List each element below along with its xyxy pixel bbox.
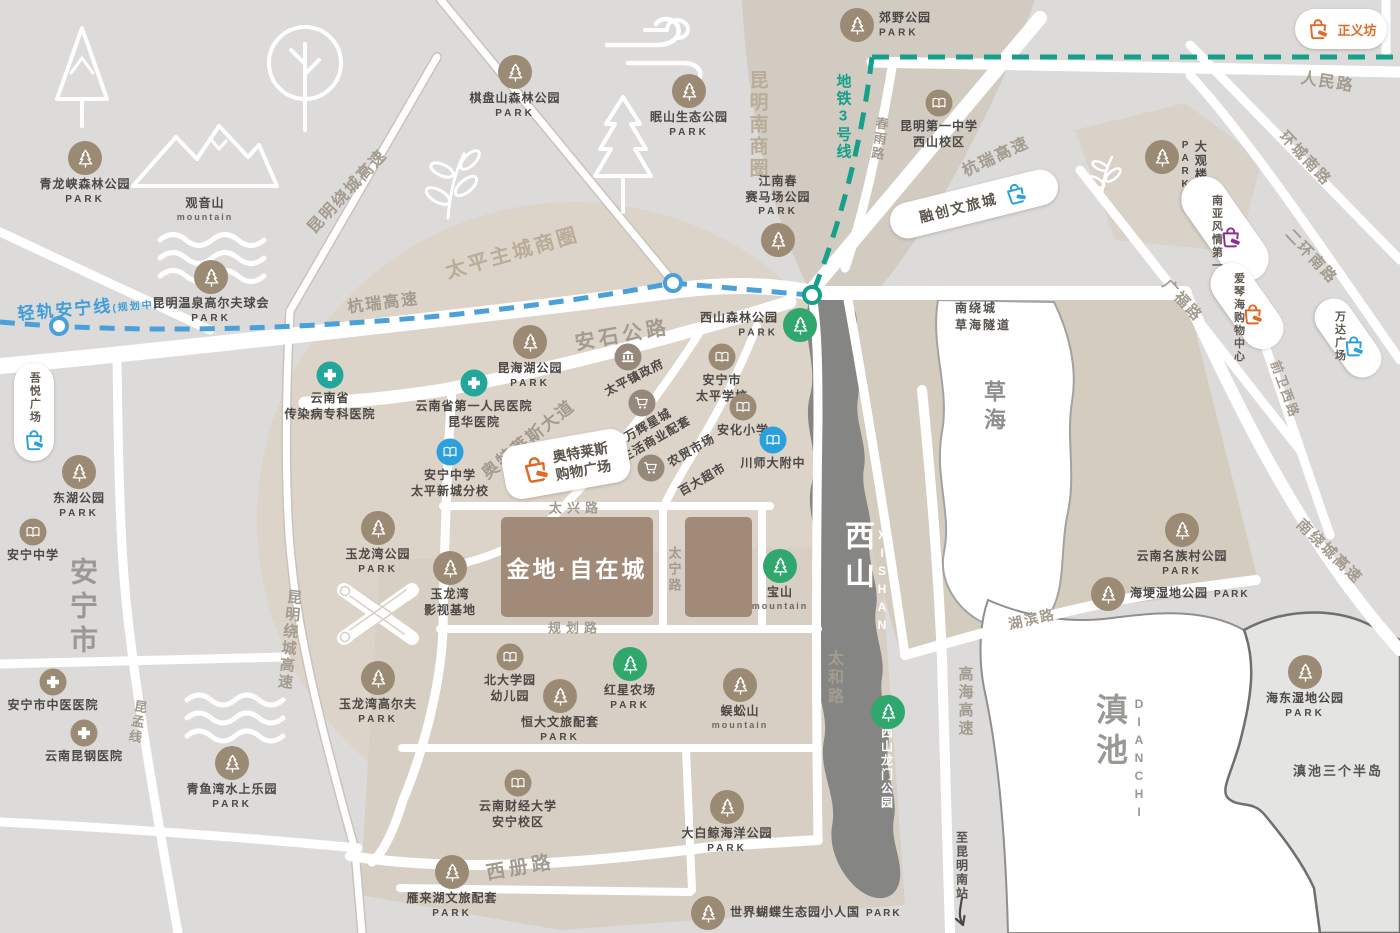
waves-icon-bottom xyxy=(187,695,283,741)
park-tree-icon xyxy=(710,790,744,824)
lrt-station-node xyxy=(665,275,681,291)
road-label-taihe: 太和路 xyxy=(821,650,845,707)
park-tree-icon xyxy=(1145,140,1179,174)
shopping-bag-icon xyxy=(21,427,47,453)
shopping-bag-icon xyxy=(1341,334,1367,360)
hospital-cross-icon xyxy=(71,720,98,747)
shopping-cart-icon xyxy=(629,390,656,417)
park-tree-icon xyxy=(840,8,874,42)
park-tree-icon xyxy=(498,55,532,89)
caohai-label: 草海 xyxy=(977,380,1009,436)
park-tree-icon xyxy=(761,223,795,257)
mall-wuyue: 吾悦广场 xyxy=(14,363,54,461)
park-tree-icon xyxy=(1091,577,1125,611)
dianchi-en-label: DIANCHI xyxy=(1132,697,1146,823)
book-icon xyxy=(730,394,757,421)
park-tree-icon xyxy=(1288,655,1322,689)
hospital-cross-icon xyxy=(317,362,344,389)
project-name: 金地·自在城 xyxy=(507,550,648,584)
to-station-arrow xyxy=(956,898,965,925)
shopping-bag-icon xyxy=(1000,178,1032,210)
book-icon xyxy=(709,344,736,371)
road-label-guihua: 规划路 xyxy=(548,618,602,637)
government-building-icon xyxy=(615,344,642,371)
park-tree-icon xyxy=(215,746,249,780)
mall-zhengyifang: 正义坊 xyxy=(1295,9,1387,49)
park-tree-icon xyxy=(763,549,797,583)
hospital-cross-icon xyxy=(40,669,67,696)
xishan-label: 西山 xyxy=(834,520,878,596)
xishan-longmen-label: 西山龙门公园 xyxy=(879,726,896,810)
metro-line3-label: 地铁3号线 xyxy=(833,74,854,161)
shopping-bag-icon xyxy=(1240,302,1266,328)
park-tree-icon xyxy=(513,325,547,359)
park-tree-icon xyxy=(68,141,102,175)
shopping-bag-icon xyxy=(1218,225,1244,251)
book-icon xyxy=(760,427,787,454)
round-tree-trunk xyxy=(291,44,319,130)
guanyin-mountain-snow xyxy=(210,138,226,149)
shopping-bag-icon xyxy=(517,451,555,489)
park-tree-icon xyxy=(871,695,905,729)
park-tree-icon xyxy=(194,260,228,294)
leaf-sprig-icon xyxy=(424,148,483,218)
park-tree-icon xyxy=(361,511,395,545)
park-tree-icon xyxy=(783,308,817,342)
road-label-gaohai: 高海高速 xyxy=(955,666,976,738)
park-tree-icon xyxy=(361,661,395,695)
triangle-tree-icon xyxy=(57,28,107,126)
project-block-main: 金地·自在城 xyxy=(501,517,653,617)
caohai-lake xyxy=(936,300,1074,629)
book-icon xyxy=(437,439,464,466)
park-tree-icon xyxy=(613,647,647,681)
park-tree-icon xyxy=(672,74,706,108)
wind-swirl-icon xyxy=(645,20,688,38)
metro-station-node xyxy=(804,287,820,303)
park-tree-icon xyxy=(433,551,467,585)
park-tree-icon xyxy=(543,679,577,713)
book-icon xyxy=(20,519,47,546)
dianchi-label: 滇池 xyxy=(1087,693,1133,773)
park-tree-icon xyxy=(435,855,469,889)
park-tree-icon xyxy=(691,896,725,930)
tunnel-label: 南绕城草海隧道 xyxy=(955,300,1011,334)
road-label-taining: 太宁路 xyxy=(665,546,684,594)
project-block-east xyxy=(685,517,752,617)
south-biz-circle-label: 昆明南商圈 xyxy=(744,70,771,180)
road-label-taixing: 太兴路 xyxy=(549,498,603,517)
park-tree-icon xyxy=(62,455,96,489)
book-icon xyxy=(497,644,524,671)
book-icon xyxy=(505,770,532,797)
anning-city-label: 安宁市 xyxy=(62,557,102,659)
shopping-bag-icon xyxy=(1305,16,1331,42)
hospital-cross-icon xyxy=(461,370,488,397)
to-kunming-south-label: 至昆明南站 xyxy=(954,831,971,901)
triangle-tree-branches xyxy=(71,58,93,73)
shopping-cart-icon xyxy=(638,455,665,482)
park-tree-icon xyxy=(723,668,757,702)
real-estate-location-map: 金地·自在城 安宁市 草海 西山 XISHAN 滇池 DIANCHI 昆明南商圈… xyxy=(0,0,1400,933)
book-icon xyxy=(926,90,953,117)
guanyin-mountain-icon xyxy=(133,126,277,186)
park-tree-icon xyxy=(1165,513,1199,547)
xishan-en-label: XISHAN xyxy=(875,528,889,636)
peninsula-label: 滇池三个半岛 xyxy=(1293,761,1383,780)
